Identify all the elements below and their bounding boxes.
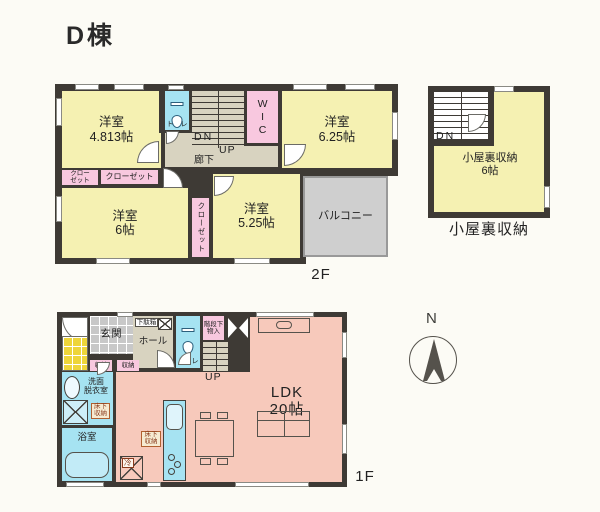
sofa-divider: [284, 412, 285, 436]
attic-stairs-dn-label: DN: [436, 130, 455, 142]
window: [168, 85, 184, 90]
balcony: バルコニー: [303, 176, 388, 257]
kitchen-sink: [166, 404, 183, 430]
2f-floor-label: 2F: [306, 266, 336, 283]
attic-caption: 小屋裏収納: [428, 221, 550, 238]
window: [114, 84, 144, 90]
entrance-porch-tiles: [62, 336, 88, 371]
2f-hallway-label: 廊下: [194, 155, 214, 167]
washroom-label: 洗面 脱衣室: [80, 377, 112, 395]
toilet-bowl: [172, 115, 183, 128]
window: [117, 312, 133, 317]
toilet-2f: トイレ: [165, 91, 189, 130]
page-title: D棟: [66, 22, 115, 51]
window: [56, 98, 62, 126]
chair: [200, 458, 211, 465]
stove: [165, 450, 184, 479]
closet-small-2f: クロー ゼット: [62, 170, 98, 185]
stair-divider: [216, 342, 217, 372]
toilet-icon: [171, 94, 184, 136]
genkan-entrance: 玄関: [90, 316, 133, 354]
1f-stairs: [203, 342, 228, 372]
window: [235, 482, 309, 487]
getabako-label-box: 下駄箱: [135, 318, 158, 327]
bathtub: [65, 452, 109, 478]
burner: [168, 454, 175, 461]
double-door: [228, 318, 248, 338]
1f-floor-label: 1F: [350, 468, 380, 485]
closet-wide-2f: クローゼット: [101, 170, 158, 184]
window: [544, 186, 550, 208]
window: [96, 258, 130, 264]
window: [342, 424, 347, 454]
wic-closet: WIC: [247, 91, 278, 143]
stair-divider: [218, 91, 219, 148]
attic-storage-room-label: 小屋裏収納 6帖: [440, 152, 540, 177]
bathroom-label: 浴室: [72, 433, 102, 444]
door-leaf: [239, 318, 248, 338]
underfloor-storage-a: 床下 収納: [91, 403, 110, 419]
under-stairs-storage: 階段下 物入: [203, 316, 224, 340]
1f-stairs-up-label: UP: [205, 371, 222, 383]
window: [234, 258, 270, 264]
window: [56, 196, 62, 222]
chair: [200, 412, 211, 419]
stair-divider: [461, 92, 462, 140]
compass-needle-notch: [427, 369, 441, 381]
window: [342, 332, 347, 358]
washing-machine: [63, 400, 88, 424]
chair: [217, 412, 228, 419]
sofa: [257, 411, 310, 437]
window: [75, 84, 99, 90]
tv: [276, 321, 292, 329]
compass-north-label: N: [426, 310, 437, 327]
shoe-cabinet: [158, 318, 172, 330]
refrigerator-label: 冷: [122, 458, 134, 468]
window: [494, 86, 514, 92]
refrigerator: 冷: [120, 456, 143, 480]
window: [293, 84, 327, 90]
window: [256, 312, 314, 317]
sofa-back-line: [258, 420, 309, 421]
window: [66, 482, 104, 487]
burner: [168, 468, 175, 475]
door-leaf: [228, 318, 237, 338]
underfloor-storage-b: 床下 収納: [141, 431, 161, 447]
room-western-6: 洋室 6帖: [62, 188, 188, 258]
window: [147, 482, 161, 487]
toilet-tank: [171, 102, 184, 106]
closet-vertical-2f: クローゼット: [192, 198, 209, 257]
2f-stairs-dn-label: DN: [194, 131, 213, 143]
chair: [217, 458, 228, 465]
dining-table: [195, 420, 234, 457]
2f-stairs-up-label: UP: [219, 144, 236, 156]
toilet-tank: [182, 328, 195, 332]
wash-basin: [64, 376, 80, 399]
window: [392, 112, 398, 140]
burner: [174, 461, 181, 468]
storage-b: 収納: [117, 360, 139, 371]
window: [345, 84, 375, 90]
